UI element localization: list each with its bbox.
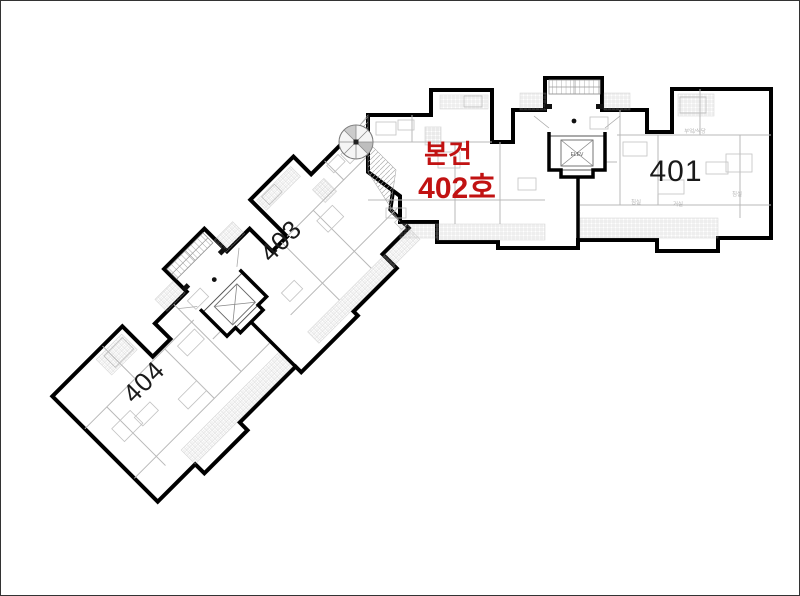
room-label-living: 거실	[673, 200, 683, 208]
unit-401-label: 401	[649, 155, 702, 188]
room-label-bedroom-left: 침실	[631, 198, 641, 206]
stair-fan-icon	[339, 125, 373, 159]
floor-plan-page: 본건 402호 401 403 404 부엌/식당 침실 거실 침실 ELEV	[0, 0, 800, 596]
floor-plan-image: 본건 402호 401 403 404 부엌/식당 침실 거실 침실 ELEV	[0, 0, 800, 596]
room-label-bedroom-right: 침실	[732, 190, 742, 198]
elevator-label: ELEV	[571, 152, 584, 158]
subject-label-line2: 402호	[418, 172, 496, 205]
room-label-kitchen-dining: 부엌/식당	[684, 127, 706, 135]
subject-label-line1: 본건	[424, 139, 472, 169]
